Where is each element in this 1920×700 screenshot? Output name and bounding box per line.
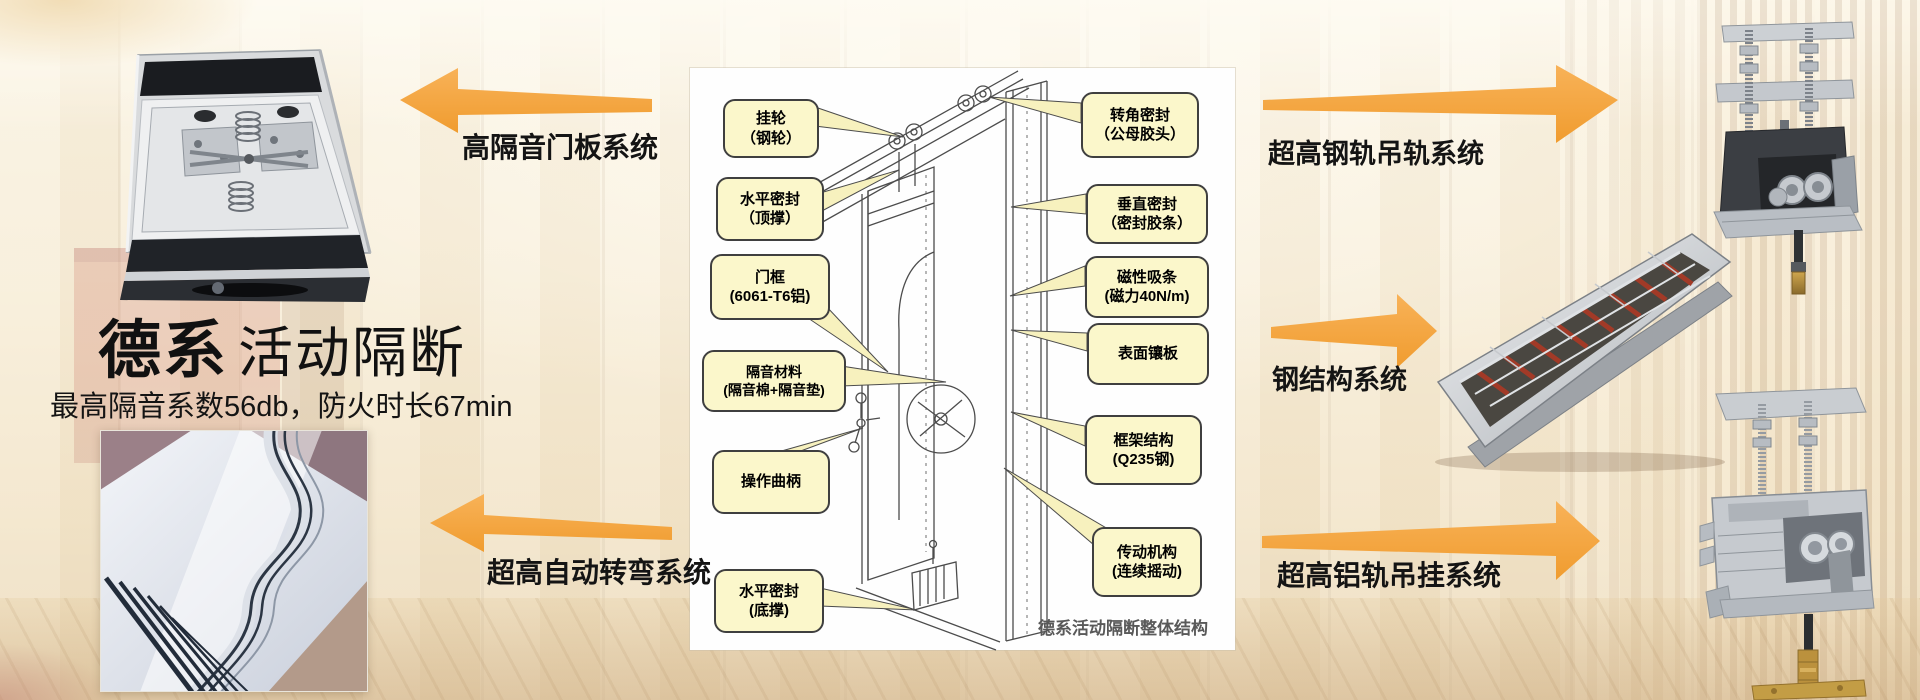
callout-transmission: 传动机构 (连续摇动)	[1092, 527, 1202, 597]
brand-subtitle: 最高隔音系数56db，防火时长67min	[50, 383, 513, 425]
label-alu-rail-system: 超高铝轨吊挂系统	[1277, 554, 1501, 594]
callout-line2: (6061-T6铝)	[730, 287, 811, 307]
callout-line1: 门框	[755, 268, 785, 288]
callout-line2: (磁力40N/m)	[1104, 287, 1189, 307]
callout-frame-structure: 框架结构 (Q235钢)	[1085, 415, 1202, 485]
callout-line2: （顶撑）	[740, 209, 800, 229]
callout-line1: 框架结构	[1113, 431, 1173, 451]
callout-sound-insulation: 隔音材料 (隔音棉+隔音垫)	[702, 350, 846, 412]
curved-track-illustration	[100, 430, 368, 692]
brand-title: 德系活动隔断	[98, 300, 466, 391]
aluminium-hanger-illustration	[1688, 386, 1898, 700]
callout-line1: 磁性吸条	[1117, 268, 1177, 288]
callout-line2: （公母胶头）	[1095, 125, 1185, 145]
callout-hanging-wheel: 挂轮 （钢轮）	[723, 99, 819, 158]
callout-line1: 水平密封	[740, 190, 800, 210]
callout-line2: (底撑)	[749, 601, 789, 621]
callout-line2: （密封胶条）	[1102, 214, 1192, 234]
brand-title-primary: 德系	[98, 316, 228, 386]
label-steel-rail-system: 超高钢轨吊轨系统	[1268, 132, 1484, 171]
steel-hanger-illustration	[1692, 0, 1882, 295]
callout-magnetic-strip: 磁性吸条 (磁力40N/m)	[1085, 256, 1209, 318]
curved-track-photo	[100, 430, 368, 692]
callout-line1: 挂轮	[756, 109, 786, 129]
callout-line1: 隔音材料	[746, 363, 802, 381]
callout-line1: 传动机构	[1117, 543, 1177, 563]
callout-horizontal-seal-bottom: 水平密封 (底撑)	[714, 569, 824, 633]
label-auto-turn-system: 超高自动转弯系统	[487, 551, 711, 591]
callout-line1: 转角密封	[1110, 106, 1170, 126]
diagram-caption: 德系活动隔断整体结构	[1038, 614, 1228, 639]
callout-line2: (Q235钢)	[1113, 450, 1175, 470]
callout-surface-panel: 表面镶板	[1087, 323, 1209, 385]
callout-door-frame: 门框 (6061-T6铝)	[710, 254, 830, 320]
callout-line1: 操作曲柄	[741, 472, 801, 492]
label-door-panel-system: 高隔音门板系统	[462, 126, 658, 166]
callout-vertical-seal: 垂直密封 （密封胶条）	[1086, 184, 1208, 244]
infographic-canvas: 德系活动隔断 最高隔音系数56db，防火时长67min 高隔音门板系统 超高自动…	[0, 0, 1920, 700]
callout-horizontal-seal-top: 水平密封 （顶撑）	[716, 177, 824, 241]
aluminium-hanger-photo	[1688, 386, 1898, 700]
callout-line1: 表面镶板	[1118, 344, 1178, 364]
door-panel-photo	[90, 0, 400, 312]
label-steel-structure-system: 钢结构系统	[1272, 358, 1407, 397]
callout-line2: (隔音棉+隔音垫)	[723, 381, 825, 399]
steel-hanger-photo	[1692, 0, 1882, 295]
door-panel-illustration	[90, 0, 400, 312]
callout-line1: 垂直密封	[1117, 195, 1177, 215]
callout-line2: （钢轮）	[741, 129, 801, 149]
brand-title-secondary: 活动隔断	[238, 322, 466, 384]
callout-line1: 水平密封	[739, 582, 799, 602]
callout-operating-crank: 操作曲柄	[712, 450, 830, 514]
callout-corner-seal: 转角密封 （公母胶头）	[1081, 92, 1199, 158]
callout-line2: (连续摇动)	[1112, 562, 1182, 582]
